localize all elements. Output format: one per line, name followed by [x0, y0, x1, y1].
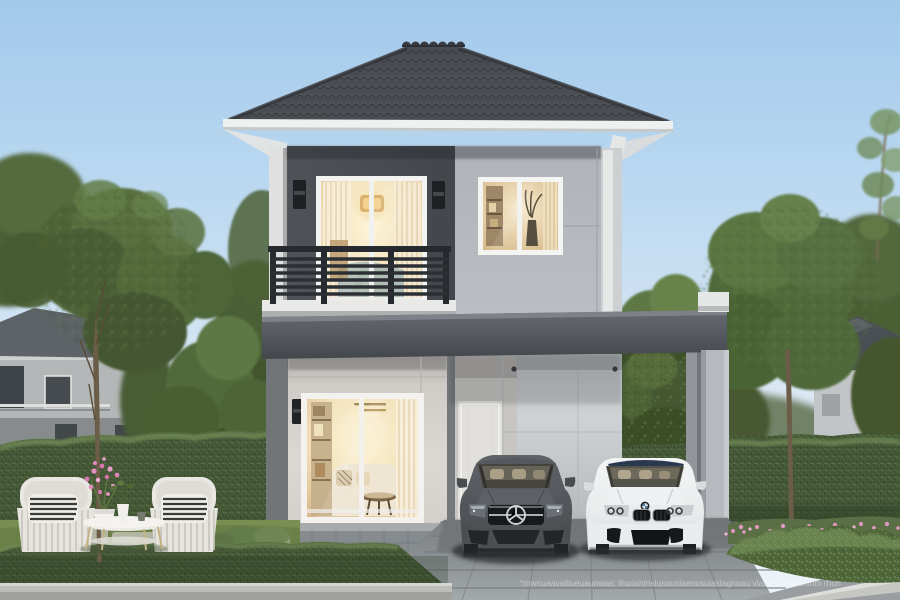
svg-text:*mwnuaavailiueuaunwas: ihuriah: *mwnuaavailiueuaunwas: ihuriahinslusouni…	[520, 578, 841, 588]
